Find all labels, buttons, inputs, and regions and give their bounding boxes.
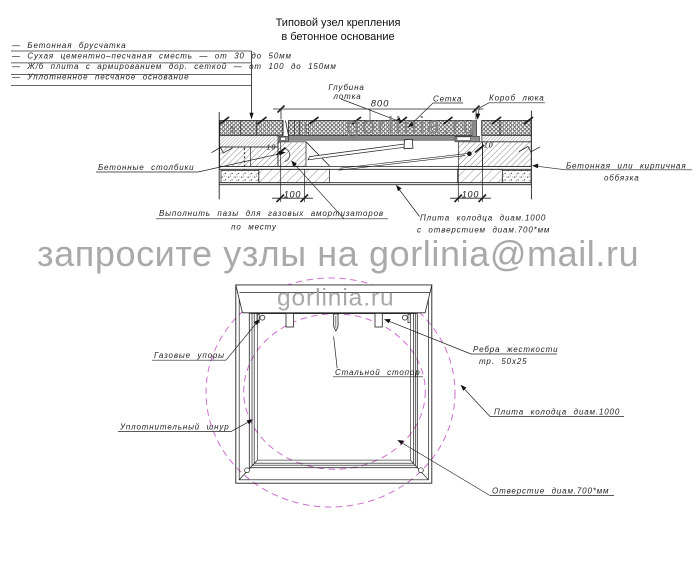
svg-text:тр. 50х25: тр. 50х25 bbox=[479, 357, 527, 366]
svg-text:— Уплотненное песчаное осно: — Уплотненное песчаное основание bbox=[11, 73, 189, 82]
svg-text:gorlinia.ru: gorlinia.ru bbox=[277, 284, 394, 311]
svg-text:— Сухая цементно–песчаная с: — Сухая цементно–песчаная сместь — от 30… bbox=[11, 51, 292, 60]
svg-text:50: 50 bbox=[231, 126, 237, 133]
svg-text:100: 100 bbox=[284, 189, 302, 199]
svg-text:215: 215 bbox=[305, 123, 311, 135]
svg-text:gorlinia.ru: gorlinia.ru bbox=[346, 113, 478, 140]
svg-text:— Ж/б плита с армированием: — Ж/б плита с армированием дор. сеткой —… bbox=[11, 62, 337, 71]
svg-text:10: 10 bbox=[267, 142, 277, 151]
svg-text:Плита колодца диам.1000: Плита колодца диам.1000 bbox=[420, 214, 546, 223]
svg-text:Короб люка: Короб люка bbox=[489, 94, 545, 103]
svg-text:100: 100 bbox=[462, 189, 480, 199]
svg-text:Сетка: Сетка bbox=[433, 95, 462, 104]
svg-text:Выполнить пазы для газовых: Выполнить пазы для газовых амортизаторов bbox=[159, 209, 384, 218]
svg-text:Глубина: Глубина bbox=[328, 83, 364, 92]
svg-text:лотка: лотка bbox=[332, 92, 361, 101]
svg-text:Бетонная или кирпичная: Бетонная или кирпичная bbox=[566, 162, 686, 171]
svg-text:по месту: по месту bbox=[231, 223, 277, 232]
svg-text:10: 10 bbox=[484, 140, 494, 149]
svg-text:800: 800 bbox=[371, 99, 389, 110]
svg-text:Отверстие диам.700*мм: Отверстие диам.700*мм bbox=[492, 487, 609, 496]
svg-text:Уплотнительный шнур: Уплотнительный шнур bbox=[119, 423, 230, 432]
svg-text:в бетонное основание: в бетонное основание bbox=[281, 31, 394, 43]
svg-text:запросите узлы на gorlinia@mai: запросите узлы на gorlinia@mail.ru bbox=[37, 233, 639, 274]
svg-text:Типовой узел крепления: Типовой узел крепления bbox=[276, 17, 401, 29]
svg-text:Стальной стопор: Стальной стопор bbox=[335, 368, 421, 377]
svg-text:Плита колодца диам.1000: Плита колодца диам.1000 bbox=[494, 408, 620, 417]
svg-text:Ребра жесткости: Ребра жесткости bbox=[473, 345, 558, 354]
svg-text:Газовые упоры: Газовые упоры bbox=[154, 351, 225, 360]
svg-text:— Бетонная брусчатка: — Бетонная брусчатка bbox=[11, 41, 126, 50]
svg-text:оббязка: оббязка bbox=[604, 174, 640, 183]
svg-text:Бетонные столбики: Бетонные столбики bbox=[98, 163, 194, 172]
